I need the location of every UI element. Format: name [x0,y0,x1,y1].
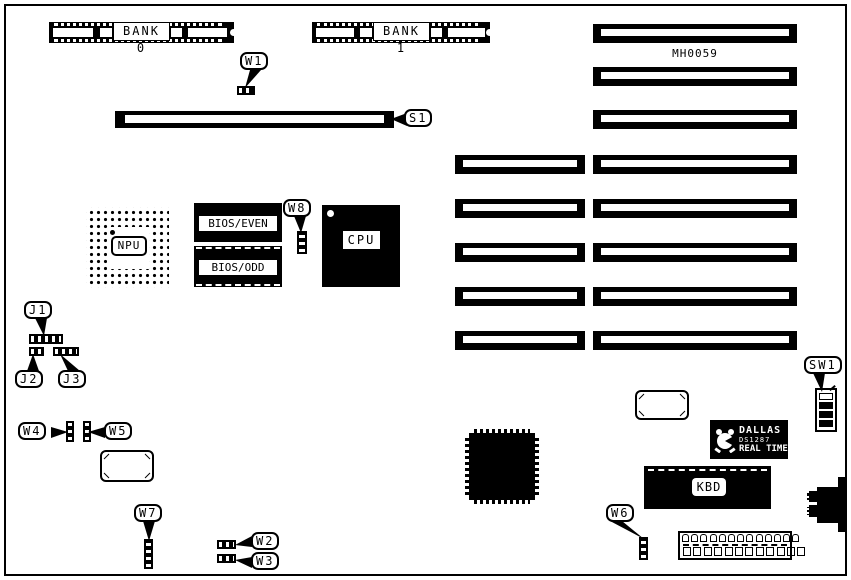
callout-w4: W4 [18,422,46,440]
callout-w5: W5 [104,422,132,440]
callout-sw1: SW1 [804,356,842,374]
callout-w8: W8 [283,199,311,217]
callout-j2: J2 [15,370,43,388]
callout-j3: J3 [58,370,86,388]
callout-w6: W6 [606,504,634,522]
callout-w2: W2 [251,532,279,550]
callout-j1: J1 [24,301,52,319]
callout-w1: W1 [240,52,268,70]
motherboard-diagram: BANK 0 BANK 1 MH0059 NPU BIOS/EVEN [0,0,851,580]
callout-pointers [0,0,851,580]
callout-w7: W7 [134,504,162,522]
callout-s1: S1 [404,109,432,127]
callout-w3: W3 [251,552,279,570]
